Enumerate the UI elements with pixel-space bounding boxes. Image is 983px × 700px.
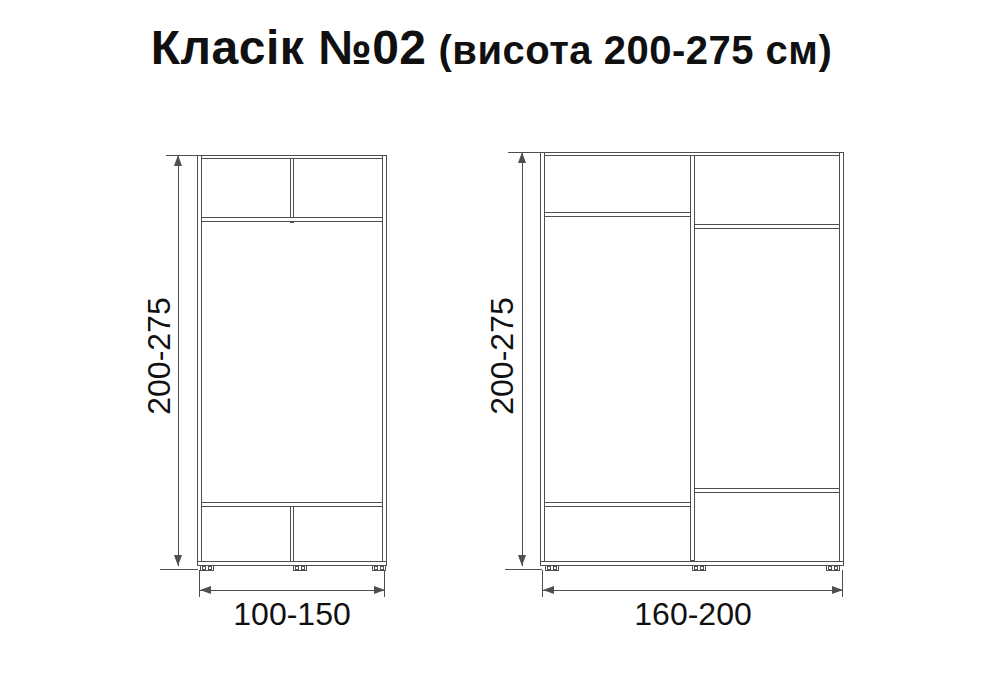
foot-wheel-icon <box>700 566 704 570</box>
right-wardrobe-right-bottom-shelf <box>694 488 840 493</box>
right-width-extension-right <box>842 570 843 597</box>
right-width-dimension-label: 160-200 <box>613 597 773 631</box>
right-wardrobe-left-bottom-shelf <box>544 502 691 507</box>
foot-wheel-icon <box>834 566 838 570</box>
foot-icon <box>826 565 840 571</box>
right-wardrobe-body <box>540 152 844 566</box>
right-height-dimension-line <box>522 152 523 566</box>
diagram-page: Класік №02(висота 200-275 см) <box>0 0 983 700</box>
foot-wheel-icon <box>553 566 557 570</box>
right-wardrobe-drawing: 200-275 160-200 <box>0 0 983 700</box>
arrow-left-icon <box>543 586 554 594</box>
right-width-dimension-line <box>543 590 843 591</box>
arrow-down-icon <box>518 555 526 566</box>
right-wardrobe-right-top-shelf <box>694 224 840 229</box>
right-wardrobe-right-wall <box>839 152 844 566</box>
foot-wheel-icon <box>828 566 832 570</box>
foot-wheel-icon <box>547 566 551 570</box>
right-height-extension-top <box>508 152 540 153</box>
arrow-up-icon <box>518 152 526 163</box>
right-width-extension-left <box>542 570 543 597</box>
foot-wheel-icon <box>694 566 698 570</box>
foot-icon <box>692 565 706 571</box>
right-wardrobe-left-top-shelf <box>544 212 691 217</box>
foot-icon <box>545 565 559 571</box>
right-height-extension-bottom <box>505 569 542 570</box>
right-height-dimension-label: 200-275 <box>485 291 519 421</box>
